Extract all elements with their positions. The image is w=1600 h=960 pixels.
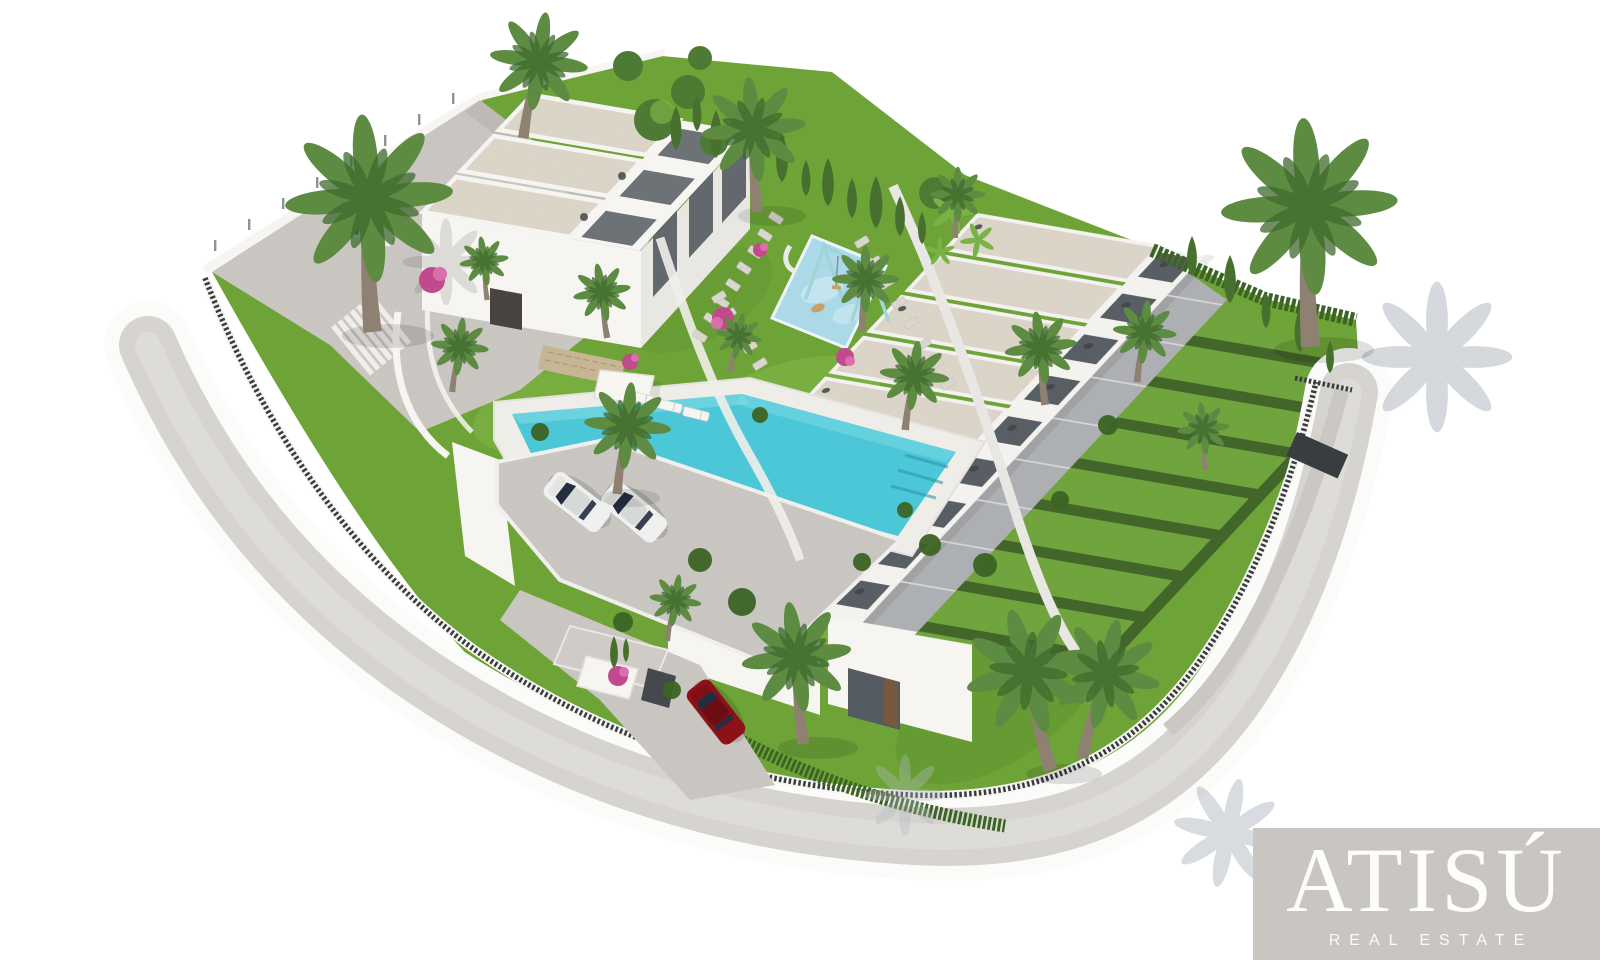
wood-door xyxy=(884,678,898,728)
brand-name: ATISÚ xyxy=(1286,838,1567,923)
palm-shadow xyxy=(864,754,945,835)
brand-tagline: REAL ESTATE xyxy=(1320,932,1534,950)
palm-shadow xyxy=(1362,282,1513,433)
render-canvas: ATISÚ REAL ESTATE xyxy=(0,0,1600,960)
watermark-logo: ATISÚ REAL ESTATE xyxy=(1253,828,1600,960)
site-render xyxy=(0,0,1600,960)
villa-entrance-door xyxy=(490,288,522,330)
